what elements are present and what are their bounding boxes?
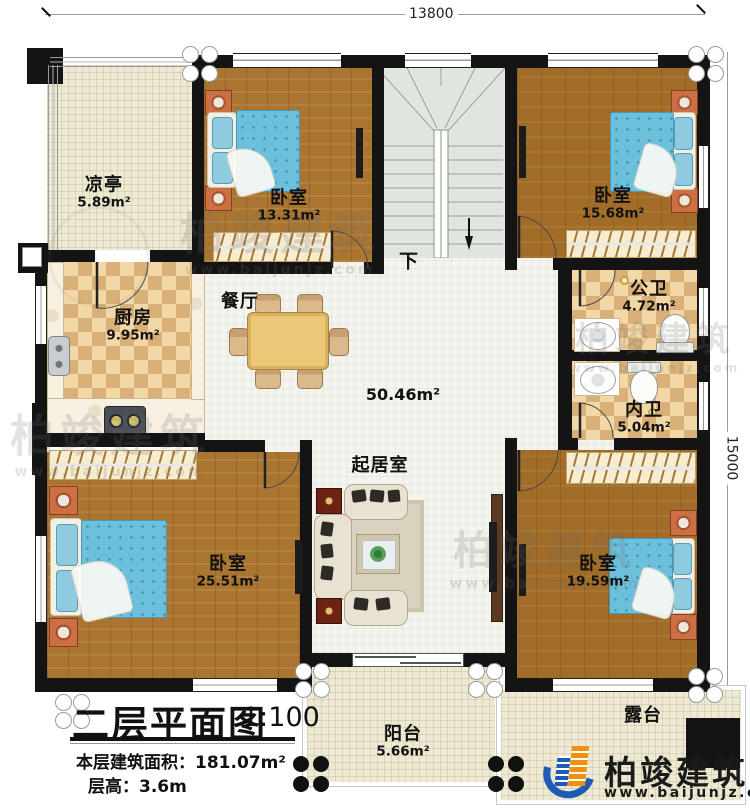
sofa-cushion	[320, 521, 334, 537]
floor-plan-page: { "dimensions": { "top": "13800", "right…	[0, 0, 750, 811]
nightstand	[49, 618, 78, 647]
bed-pillow	[673, 578, 692, 610]
tv	[519, 544, 526, 596]
room-label-bedroom-top-left: 卧室13.31m²	[258, 188, 321, 223]
room-label-inner-bath: 内卫5.04m²	[617, 400, 670, 435]
toilet-tank	[656, 342, 694, 353]
stairs-direction-label: 下	[399, 251, 419, 272]
dining-chair	[329, 328, 349, 356]
bed-pillow	[673, 543, 692, 575]
sofa-cushion	[353, 597, 368, 611]
nightstand	[670, 510, 697, 536]
room-label-bedroom-bottom-left: 卧室25.51m²	[197, 554, 260, 589]
pier-circles	[182, 46, 220, 84]
tv	[489, 522, 497, 592]
nightstand	[49, 486, 78, 515]
sofa-cushion	[369, 489, 384, 502]
room-label-bedroom-bottom-right: 卧室19.59m²	[567, 554, 630, 589]
room-label-terrace: 露台	[624, 706, 662, 726]
brand-url: www.baijunjz.com	[604, 785, 750, 801]
watermark-circle	[48, 206, 150, 308]
nightstand	[670, 614, 697, 640]
title-rule	[70, 737, 295, 741]
room-label-balcony: 阳台5.66m²	[376, 724, 429, 759]
sofa-cushion	[351, 489, 367, 503]
end-table	[316, 598, 342, 624]
dining-table	[247, 312, 329, 370]
nightstand	[205, 186, 232, 211]
bath-sink	[580, 366, 616, 394]
room-label-pavilion: 凉亭5.89m²	[77, 175, 130, 210]
pier-dots	[488, 756, 526, 794]
tv	[519, 126, 526, 178]
tv	[356, 128, 363, 178]
room-label-living: 起居室	[352, 456, 409, 476]
pier-circles	[688, 46, 726, 84]
dining-chair	[229, 328, 249, 356]
floor-height-line: 层高：3.6m	[88, 772, 187, 797]
floor-area-line: 本层建筑面积：181.07m²	[76, 748, 286, 773]
sofa-cushion	[320, 565, 334, 580]
plan-scale: 1:100	[242, 702, 320, 733]
pier-dots	[293, 756, 331, 794]
room-label-public-bath: 公卫4.72m²	[622, 279, 675, 314]
end-table	[316, 488, 342, 514]
bed-pillow	[212, 117, 233, 149]
room-label-dining: 餐厅	[221, 292, 259, 312]
bed-pillow	[674, 117, 693, 150]
sofa-cushion	[320, 543, 333, 558]
room-label-kitchen: 厨房9.95m²	[106, 308, 159, 343]
pier-circles	[295, 663, 331, 699]
bed-pillow	[56, 524, 78, 566]
pier-circles	[468, 663, 504, 699]
tv	[295, 540, 302, 594]
sofa-cushion	[387, 489, 400, 502]
room-label-bedroom-top-right: 卧室15.68m²	[582, 186, 645, 221]
nightstand	[671, 188, 698, 213]
dining-chair	[255, 368, 281, 389]
title-rule-thin	[70, 743, 295, 744]
plant	[370, 546, 386, 562]
pier-circles	[688, 668, 724, 704]
dining-chair	[297, 368, 323, 389]
room-label-open-area: 50.46m²	[366, 386, 440, 404]
sofa-cushion	[375, 597, 390, 611]
bath-sink	[580, 322, 616, 350]
